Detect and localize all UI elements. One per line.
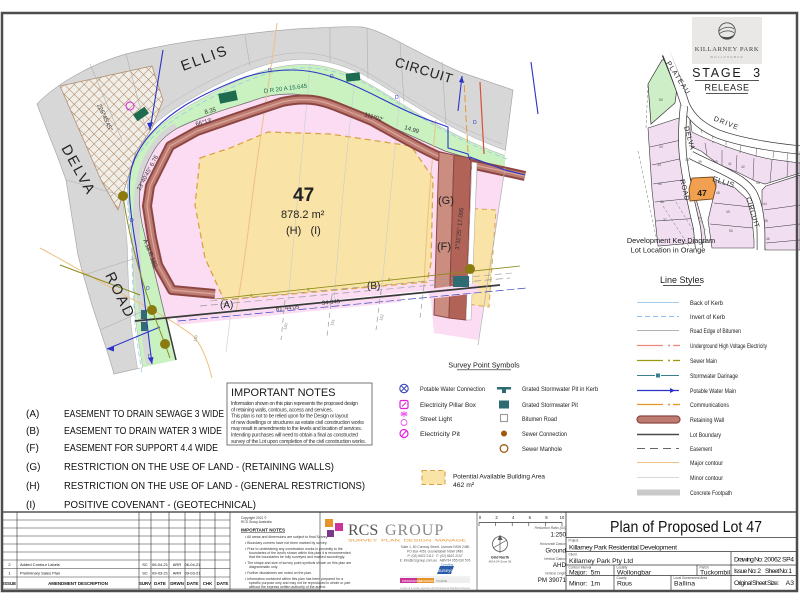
svg-text:Sheet No: 1: Sheet No: 1 bbox=[765, 568, 792, 575]
svg-text:06-04-21: 06-04-21 bbox=[152, 562, 169, 567]
svg-text:44: 44 bbox=[763, 202, 767, 206]
svg-text:Sewer Main: Sewer Main bbox=[690, 359, 717, 365]
svg-text:(I): (I) bbox=[26, 500, 35, 511]
svg-text:(F): (F) bbox=[26, 443, 39, 454]
svg-text:152: 152 bbox=[378, 313, 385, 321]
svg-text:This plan is not to be relied: This plan is not to be relied upon for t… bbox=[231, 414, 349, 420]
svg-text:D: D bbox=[473, 120, 477, 126]
svg-text:(G): (G) bbox=[26, 462, 40, 473]
svg-text:of retaining walls, contours,: of retaining walls, contours, access and… bbox=[231, 407, 333, 413]
svg-text:Survey Point Symbols: Survey Point Symbols bbox=[448, 361, 520, 370]
svg-text:41: 41 bbox=[728, 162, 732, 166]
svg-text:RESTRICTION ON THE USE OF LAND: RESTRICTION ON THE USE OF LAND - (GENERA… bbox=[64, 481, 365, 492]
svg-text:Drawing No:: Drawing No: bbox=[734, 557, 763, 564]
svg-text:Potential Available Building A: Potential Available Building Area bbox=[453, 474, 545, 481]
svg-text:Concrete Footpath: Concrete Footpath bbox=[690, 491, 732, 497]
svg-text:• Boundary corners have not b: • Boundary corners have not been marked … bbox=[245, 541, 327, 545]
svg-text:Ground: Ground bbox=[545, 548, 566, 555]
svg-text:Bitumen Road: Bitumen Road bbox=[522, 417, 557, 423]
svg-text:SURVEY PLAN DESIGN MANAGE: SURVEY PLAN DESIGN MANAGE bbox=[348, 539, 468, 543]
svg-text:IMPORTANT NOTES: IMPORTANT NOTES bbox=[241, 528, 285, 533]
svg-text:09-03-21: 09-03-21 bbox=[184, 571, 201, 576]
svg-text:Wollongbar: Wollongbar bbox=[617, 570, 652, 577]
svg-text:(B): (B) bbox=[367, 281, 380, 292]
svg-text:Killarney Park Residential Dev: Killarney Park Residential Development bbox=[569, 545, 677, 552]
svg-text:Line Styles: Line Styles bbox=[660, 275, 705, 285]
svg-text:a mark of a certain approach w: a mark of a certain approach with Profes… bbox=[400, 587, 471, 590]
svg-text:DRWN: DRWN bbox=[170, 581, 184, 586]
svg-text:of new dwellings or structures: of new dwellings or structures as estate… bbox=[231, 420, 364, 426]
svg-text:SC: SC bbox=[142, 562, 148, 567]
svg-text:DATE: DATE bbox=[187, 581, 199, 586]
svg-text:D: D bbox=[395, 95, 399, 101]
svg-text:PM 39071: PM 39071 bbox=[538, 577, 567, 584]
svg-text:D: D bbox=[330, 74, 334, 80]
svg-text:39: 39 bbox=[698, 160, 702, 164]
svg-text:may result in amendments to th: may result in amendments to the levels a… bbox=[231, 426, 362, 432]
svg-text:Ballina: Ballina bbox=[674, 581, 695, 588]
svg-text:46: 46 bbox=[766, 237, 770, 241]
svg-text:ISSUE: ISSUE bbox=[3, 581, 16, 586]
svg-text:1: 1 bbox=[8, 571, 11, 576]
svg-text:47: 47 bbox=[293, 185, 314, 206]
svg-text:2: 2 bbox=[8, 562, 11, 567]
svg-text:8: 8 bbox=[545, 515, 548, 520]
svg-text:33: 33 bbox=[659, 145, 663, 149]
svg-text:Plan of Proposed Lot 47: Plan of Proposed Lot 47 bbox=[610, 519, 762, 536]
svg-text:POSITIVE COVENANT - (GEOTECHNI: POSITIVE COVENANT - (GEOTECHNICAL) bbox=[64, 500, 256, 511]
svg-text:Minor: 1m: Minor: 1m bbox=[569, 581, 600, 588]
svg-text:E: info@rcsgroup.com.au ABN: E: info@rcsgroup.com.au ABN 54 055 030 5… bbox=[400, 559, 471, 563]
svg-text:Client: Client bbox=[569, 553, 577, 557]
svg-text:42: 42 bbox=[741, 165, 745, 169]
svg-text:SURV: SURV bbox=[139, 581, 151, 586]
svg-text:50: 50 bbox=[729, 229, 733, 233]
svg-text:Lot Boundary: Lot Boundary bbox=[690, 433, 721, 439]
svg-text:A3: A3 bbox=[786, 580, 795, 587]
svg-text:150: 150 bbox=[192, 334, 199, 342]
svg-text:Electricity Pit: Electricity Pit bbox=[420, 432, 460, 438]
svg-text:4: 4 bbox=[512, 515, 515, 520]
svg-text:DATE: DATE bbox=[154, 581, 166, 586]
svg-text:Development Key Diagram: Development Key Diagram bbox=[627, 236, 715, 245]
svg-text:• Further disclaimers are not: • Further disclaimers are noted on the p… bbox=[245, 571, 312, 575]
svg-text:Sewer Connection: Sewer Connection bbox=[522, 432, 567, 438]
svg-text:Tuckombil: Tuckombil bbox=[700, 570, 730, 577]
svg-text:Project: Project bbox=[569, 539, 579, 543]
svg-text:• All areas and dimensions ar: • All areas and dimensions are subject t… bbox=[245, 535, 328, 539]
svg-text:diagrammatic only.: diagrammatic only. bbox=[249, 565, 278, 569]
svg-text:Electricity Pillar Box: Electricity Pillar Box bbox=[420, 403, 476, 409]
svg-text:ARR: ARR bbox=[173, 562, 182, 567]
svg-text:43: 43 bbox=[756, 181, 760, 185]
svg-text:(H) (I): (H) (I) bbox=[286, 225, 321, 237]
svg-text:49: 49 bbox=[726, 210, 730, 214]
svg-text:150: 150 bbox=[282, 322, 289, 330]
svg-text:SC: SC bbox=[142, 571, 148, 576]
svg-text:Rous: Rous bbox=[617, 581, 633, 588]
svg-text:RCS: RCS bbox=[348, 522, 378, 539]
svg-text:Preliminary Sales Plan: Preliminary Sales Plan bbox=[20, 571, 60, 576]
svg-text:38: 38 bbox=[685, 158, 689, 162]
svg-text:EASEMENT TO DRAIN WATER 3 WIDE: EASEMENT TO DRAIN WATER 3 WIDE bbox=[64, 426, 222, 437]
svg-text:Invert of Kerb: Invert of Kerb bbox=[690, 315, 726, 321]
svg-text:34: 34 bbox=[657, 163, 661, 167]
svg-text:that the boundaries be fully s: that the boundaries be fully surveyed an… bbox=[249, 555, 345, 559]
svg-text:(G): (G) bbox=[438, 195, 454, 207]
svg-text:Vertical Datum: Vertical Datum bbox=[544, 557, 566, 561]
svg-text:Original Sheet Size:: Original Sheet Size: bbox=[734, 580, 779, 587]
svg-text:35: 35 bbox=[658, 182, 662, 186]
svg-text:50: 50 bbox=[659, 98, 663, 102]
svg-text:AHD: AHD bbox=[553, 562, 567, 569]
svg-text:ARR: ARR bbox=[173, 571, 182, 576]
svg-text:P: (02) 6622 2112 F: (02) 66: P: (02) 6622 2112 F: (02) 6622 2107 bbox=[407, 554, 462, 558]
svg-text:AMENDMENT DESCRIPTION: AMENDMENT DESCRIPTION bbox=[48, 581, 108, 586]
svg-text:37: 37 bbox=[663, 218, 667, 222]
svg-text:878.2 m²: 878.2 m² bbox=[281, 209, 325, 221]
svg-text:DATE: DATE bbox=[217, 581, 229, 586]
svg-text:SCHEME: SCHEME bbox=[436, 579, 447, 583]
svg-text:Communications: Communications bbox=[690, 403, 729, 409]
svg-text:Intending purchases will need: Intending purchases will need to obtain … bbox=[231, 433, 358, 439]
svg-text:Lot Location in Orange: Lot Location in Orange bbox=[631, 246, 706, 255]
svg-text:Suite 1, 80 Conway Street, Lis: Suite 1, 80 Conway Street, Lismore NSW 2… bbox=[401, 545, 470, 549]
svg-text:Potable Water Connection: Potable Water Connection bbox=[420, 387, 485, 393]
svg-text:EASEMENT FOR SUPPORT 4.4 WIDE: EASEMENT FOR SUPPORT 4.4 WIDE bbox=[64, 443, 218, 454]
svg-text:Sewer Manhole: Sewer Manhole bbox=[522, 447, 563, 453]
svg-text:Back of Kerb: Back of Kerb bbox=[690, 301, 724, 307]
svg-text:(A): (A) bbox=[220, 300, 233, 311]
svg-text:48: 48 bbox=[716, 191, 720, 195]
svg-text:47: 47 bbox=[697, 188, 707, 198]
svg-text:36: 36 bbox=[660, 200, 664, 204]
svg-text:Easement: Easement bbox=[690, 447, 712, 453]
svg-text:Street Light: Street Light bbox=[420, 417, 452, 423]
svg-text:1:250: 1:250 bbox=[551, 532, 567, 539]
svg-text:CHK: CHK bbox=[203, 581, 213, 586]
svg-text:WOLLONGBAR: WOLLONGBAR bbox=[710, 55, 744, 59]
svg-text:Consulting: Consulting bbox=[441, 563, 454, 567]
svg-text:06-04-21: 06-04-21 bbox=[184, 562, 201, 567]
svg-text:2: 2 bbox=[495, 515, 498, 520]
svg-text:(B): (B) bbox=[26, 426, 39, 437]
svg-text:RELEASE: RELEASE bbox=[704, 83, 749, 93]
svg-text:survey of the Lot upon complet: survey of the Lot upon completion of the… bbox=[231, 439, 366, 445]
svg-text:Potable Water Main: Potable Water Main bbox=[690, 389, 736, 395]
svg-text:STANDARDS: STANDARDS bbox=[419, 579, 435, 583]
svg-text:20062 SP4: 20062 SP4 bbox=[764, 557, 794, 564]
svg-text:Surveyors: Surveyors bbox=[438, 568, 458, 573]
svg-text:(H): (H) bbox=[26, 481, 40, 492]
svg-text:0: 0 bbox=[479, 515, 482, 520]
svg-text:Major: 5m: Major: 5m bbox=[569, 570, 600, 577]
svg-text:Stormwater Darinage: Stormwater Darinage bbox=[690, 374, 739, 380]
svg-text:Information shown on this plan: Information shown on this plan represent… bbox=[231, 401, 358, 407]
svg-text:Reduction Ratio (A3): Reduction Ratio (A3) bbox=[535, 526, 566, 530]
svg-text:RESTRICTION ON THE USE OF LAND: RESTRICTION ON THE USE OF LAND - (RETAIN… bbox=[64, 462, 334, 473]
svg-text:45: 45 bbox=[764, 219, 768, 223]
svg-text:462 m²: 462 m² bbox=[453, 482, 475, 489]
svg-text:D: D bbox=[268, 68, 272, 74]
svg-text:GROUP: GROUP bbox=[385, 522, 444, 539]
svg-text:KILLARNEY PARK: KILLARNEY PARK bbox=[695, 46, 760, 53]
svg-text:151: 151 bbox=[329, 318, 336, 326]
svg-text:Underground High Voltage Elect: Underground High Voltage Electricity bbox=[690, 344, 767, 350]
svg-text:without the express written au: without the express written authority of… bbox=[249, 585, 326, 589]
svg-text:(F): (F) bbox=[437, 241, 451, 253]
svg-text:STAGE 3: STAGE 3 bbox=[692, 66, 762, 80]
svg-text:IMPORTANT NOTES: IMPORTANT NOTES bbox=[231, 387, 336, 399]
svg-text:Grated Stormwater Pit: Grated Stormwater Pit bbox=[522, 403, 578, 409]
svg-text:D: D bbox=[130, 218, 134, 224]
svg-text:RCS Group Australia: RCS Group Australia bbox=[241, 520, 272, 524]
svg-text:D: D bbox=[148, 354, 152, 360]
svg-text:40: 40 bbox=[714, 160, 718, 164]
svg-text:Killarney Park Pty Ltd: Killarney Park Pty Ltd bbox=[569, 558, 633, 565]
svg-text:Issue No: 2: Issue No: 2 bbox=[734, 568, 761, 575]
svg-text:Horizontal Datum: Horizontal Datum bbox=[540, 542, 566, 546]
svg-text:D: D bbox=[146, 286, 150, 292]
svg-text:EASEMENT TO DRAIN SEWAGE 3 WID: EASEMENT TO DRAIN SEWAGE 3 WIDE bbox=[64, 409, 224, 420]
svg-text:PO Box 4051 Goonellabah NSW 24: PO Box 4051 Goonellabah NSW 2480 bbox=[407, 550, 463, 554]
svg-text:(A): (A) bbox=[26, 409, 39, 420]
svg-text:Road Edge of Bitumen: Road Edge of Bitumen bbox=[690, 329, 741, 335]
svg-text:09-03-21: 09-03-21 bbox=[152, 571, 169, 576]
svg-text:6: 6 bbox=[529, 515, 532, 520]
svg-text:Minor contour: Minor contour bbox=[690, 476, 723, 482]
svg-text:Added Contour Labels: Added Contour Labels bbox=[20, 562, 60, 567]
svg-text:Major contour: Major contour bbox=[690, 461, 723, 467]
svg-text:MGA 94 Zone 56: MGA 94 Zone 56 bbox=[489, 560, 512, 564]
svg-text:Grated Stormwater Pit in Kerb: Grated Stormwater Pit in Kerb bbox=[522, 387, 599, 393]
svg-text:Vertical Origin: Vertical Origin bbox=[545, 572, 566, 576]
svg-text:10: 10 bbox=[560, 515, 565, 520]
svg-text:Retaining Wall: Retaining Wall bbox=[690, 418, 724, 424]
